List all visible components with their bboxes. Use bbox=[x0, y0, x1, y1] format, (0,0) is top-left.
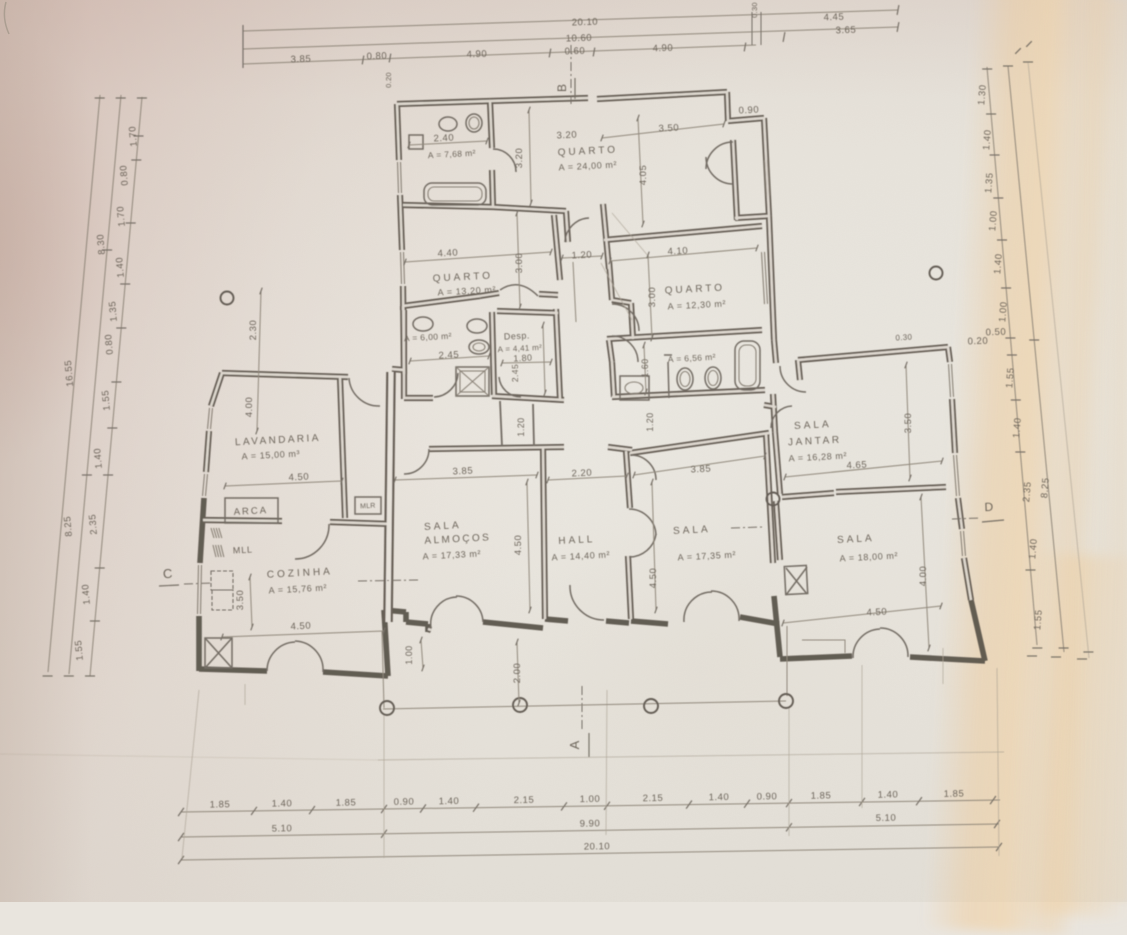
svg-text:D: D bbox=[984, 500, 993, 514]
svg-text:1.40: 1.40 bbox=[1027, 538, 1040, 560]
svg-text:1.40: 1.40 bbox=[114, 256, 127, 278]
svg-text:1.40: 1.40 bbox=[272, 798, 293, 809]
svg-text:B: B bbox=[555, 84, 569, 92]
svg-text:1.55: 1.55 bbox=[1032, 609, 1045, 631]
svg-text:SALA: SALA bbox=[837, 533, 875, 546]
svg-text:1.00: 1.00 bbox=[997, 301, 1010, 323]
svg-text:8.25: 8.25 bbox=[62, 515, 75, 537]
svg-text:16.55: 16.55 bbox=[63, 359, 76, 387]
svg-text:3.50: 3.50 bbox=[658, 122, 679, 134]
svg-text:4.90: 4.90 bbox=[652, 43, 673, 55]
svg-text:MLR: MLR bbox=[360, 503, 376, 511]
svg-text:8.25: 8.25 bbox=[1039, 477, 1052, 499]
svg-text:20.10: 20.10 bbox=[584, 841, 610, 852]
svg-text:1.85: 1.85 bbox=[944, 789, 965, 800]
svg-text:5.10: 5.10 bbox=[272, 823, 293, 834]
svg-text:2.30: 2.30 bbox=[248, 320, 259, 341]
svg-text:3.00: 3.00 bbox=[514, 253, 525, 274]
svg-text:4.50: 4.50 bbox=[866, 606, 887, 618]
svg-text:4.40: 4.40 bbox=[437, 247, 458, 259]
svg-text:HALL: HALL bbox=[558, 534, 596, 547]
svg-text:0.90: 0.90 bbox=[394, 797, 415, 808]
svg-text:4.05: 4.05 bbox=[638, 165, 649, 186]
svg-text:4.00: 4.00 bbox=[918, 566, 929, 587]
svg-text:0.80: 0.80 bbox=[366, 51, 387, 63]
svg-text:4.50: 4.50 bbox=[290, 620, 311, 632]
svg-text:1.70: 1.70 bbox=[127, 125, 140, 147]
svg-text:1.40: 1.40 bbox=[80, 583, 93, 605]
svg-text:1.40: 1.40 bbox=[878, 789, 899, 800]
svg-text:1.40: 1.40 bbox=[92, 447, 105, 469]
svg-text:1.85: 1.85 bbox=[811, 790, 832, 801]
svg-text:3.85: 3.85 bbox=[452, 465, 473, 477]
svg-text:2.40: 2.40 bbox=[433, 132, 454, 144]
svg-text:1.20: 1.20 bbox=[571, 249, 592, 261]
svg-text:0.80: 0.80 bbox=[103, 333, 116, 355]
svg-text:1.55: 1.55 bbox=[73, 639, 86, 661]
svg-text:ARCA: ARCA bbox=[233, 505, 268, 518]
svg-text:4.50: 4.50 bbox=[513, 535, 524, 556]
svg-text:2.45: 2.45 bbox=[510, 364, 520, 382]
svg-text:10.60: 10.60 bbox=[566, 33, 593, 45]
svg-text:0.60: 0.60 bbox=[564, 46, 585, 58]
svg-text:2.15: 2.15 bbox=[514, 795, 535, 806]
svg-text:1.40: 1.40 bbox=[981, 129, 994, 151]
svg-text:0.30: 0.30 bbox=[895, 333, 912, 343]
svg-text:1.85: 1.85 bbox=[210, 799, 231, 810]
svg-text:1.00: 1.00 bbox=[987, 210, 1000, 232]
svg-text:1.35: 1.35 bbox=[983, 172, 996, 194]
svg-text:0.50: 0.50 bbox=[985, 327, 1006, 339]
svg-text:1.00: 1.00 bbox=[404, 645, 414, 664]
svg-text:0.20: 0.20 bbox=[384, 72, 393, 88]
svg-text:1.40: 1.40 bbox=[1011, 417, 1024, 439]
svg-text:4.50: 4.50 bbox=[648, 568, 659, 589]
svg-text:1.60: 1.60 bbox=[640, 358, 650, 377]
svg-text:8.30: 8.30 bbox=[95, 233, 108, 255]
svg-text:0.80: 0.80 bbox=[118, 164, 131, 186]
svg-text:2.35: 2.35 bbox=[1021, 481, 1034, 503]
svg-text:1.35: 1.35 bbox=[107, 300, 120, 322]
svg-text:4.65: 4.65 bbox=[846, 459, 867, 471]
svg-text:SALA: SALA bbox=[673, 524, 711, 537]
svg-text:5.10: 5.10 bbox=[876, 813, 897, 824]
svg-text:C: C bbox=[162, 566, 172, 582]
svg-text:4.50: 4.50 bbox=[288, 471, 309, 483]
svg-text:MLL: MLL bbox=[233, 544, 253, 555]
svg-text:3.20: 3.20 bbox=[514, 148, 525, 169]
svg-text:9.90: 9.90 bbox=[580, 818, 601, 829]
svg-text:1.00: 1.00 bbox=[580, 794, 601, 805]
svg-text:3.50: 3.50 bbox=[903, 413, 914, 434]
svg-text:4.00: 4.00 bbox=[244, 397, 255, 418]
svg-text:1.20: 1.20 bbox=[516, 417, 526, 436]
svg-text:3.20: 3.20 bbox=[556, 129, 577, 141]
svg-text:SALA: SALA bbox=[424, 520, 462, 533]
svg-text:1.30: 1.30 bbox=[976, 84, 989, 106]
svg-text:3.85: 3.85 bbox=[290, 54, 311, 66]
svg-text:1.40: 1.40 bbox=[709, 792, 730, 803]
svg-text:4.10: 4.10 bbox=[667, 245, 688, 257]
svg-text:1.40: 1.40 bbox=[439, 796, 460, 807]
svg-text:1.70: 1.70 bbox=[115, 205, 128, 227]
svg-text:0.90: 0.90 bbox=[738, 104, 759, 116]
svg-text:A: A bbox=[567, 740, 582, 749]
svg-text:2.20: 2.20 bbox=[571, 467, 592, 479]
svg-text:3.65: 3.65 bbox=[835, 25, 856, 37]
svg-text:2.35: 2.35 bbox=[87, 513, 100, 535]
svg-text:1.80: 1.80 bbox=[513, 353, 533, 364]
svg-text:4.90: 4.90 bbox=[466, 49, 487, 61]
svg-text:0.20: 0.20 bbox=[967, 336, 988, 348]
svg-text:20.10: 20.10 bbox=[572, 17, 599, 29]
svg-text:Desp.: Desp. bbox=[504, 330, 531, 341]
svg-text:3.50: 3.50 bbox=[235, 590, 246, 611]
svg-text:2.15: 2.15 bbox=[643, 793, 664, 804]
svg-text:1.20: 1.20 bbox=[645, 412, 655, 431]
svg-text:SALA: SALA bbox=[794, 419, 832, 432]
svg-text:4.45: 4.45 bbox=[823, 12, 844, 24]
svg-text:2.00: 2.00 bbox=[512, 663, 523, 684]
svg-text:3.85: 3.85 bbox=[690, 463, 711, 475]
svg-text:0.90: 0.90 bbox=[757, 791, 778, 802]
svg-text:1.55: 1.55 bbox=[100, 389, 113, 411]
svg-text:2.45: 2.45 bbox=[438, 349, 459, 361]
svg-text:1.85: 1.85 bbox=[336, 797, 357, 808]
svg-text:3.00: 3.00 bbox=[647, 287, 658, 308]
svg-text:1.55: 1.55 bbox=[1004, 367, 1017, 389]
svg-text:1.40: 1.40 bbox=[992, 253, 1005, 275]
svg-text:0.30: 0.30 bbox=[750, 2, 759, 18]
